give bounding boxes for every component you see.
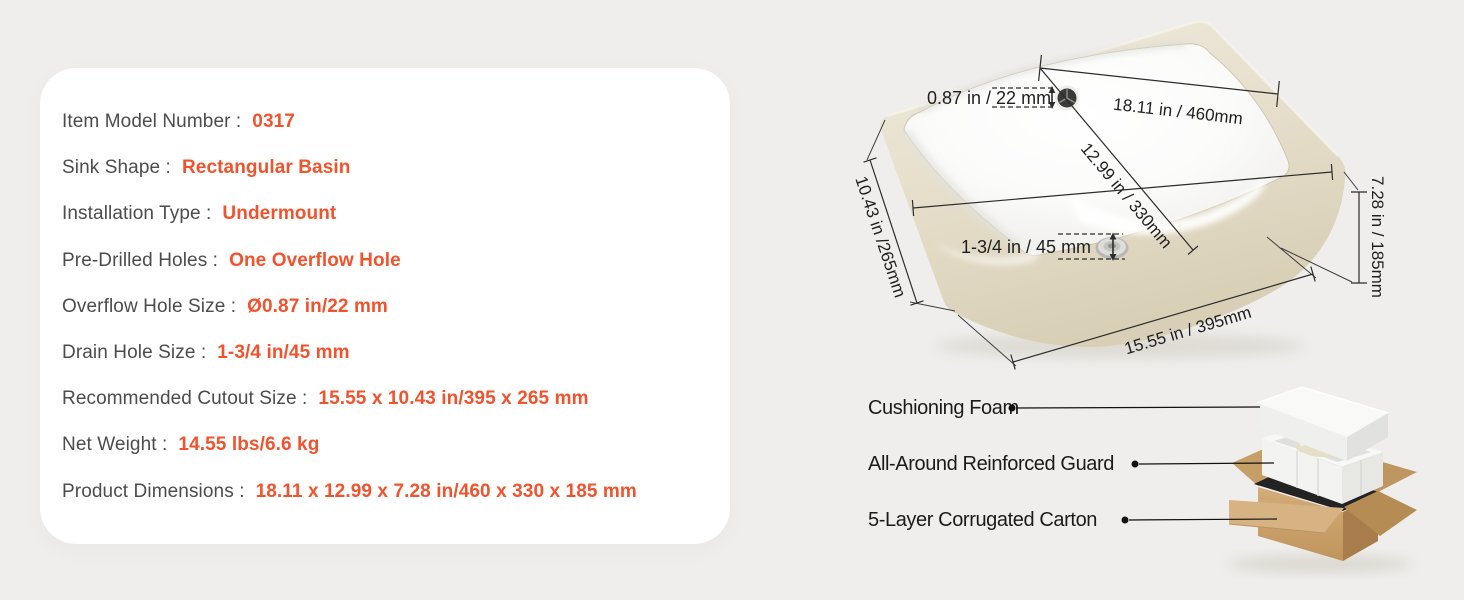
- spec-value: 1-3/4 in/45 mm: [217, 342, 349, 364]
- spec-label: Overflow Hole Size :: [62, 296, 236, 318]
- spec-value: Undermount: [222, 203, 336, 225]
- spec-value: Rectangular Basin: [182, 157, 351, 179]
- dim-line-height: [1351, 192, 1367, 283]
- packaging-label-cushioning-foam: Cushioning Foam: [868, 397, 1019, 419]
- packaging-illustration: [1228, 387, 1417, 573]
- spec-label: Net Weight :: [62, 434, 167, 456]
- spec-row-model-number: Item Model Number : 0317: [62, 99, 730, 145]
- packaging-callouts: Cushioning Foam All-Around Reinforced Gu…: [868, 397, 1277, 531]
- spec-row-drain-hole-size: Drain Hole Size : 1-3/4 in/45 mm: [62, 330, 730, 376]
- spec-label: Product Dimensions :: [62, 481, 245, 503]
- dim-label-drain-size: 1-3/4 in / 45 mm: [961, 237, 1091, 257]
- spec-label: Drain Hole Size :: [62, 342, 206, 364]
- spec-value: 0317: [252, 111, 295, 133]
- spec-row-overflow-hole-size: Overflow Hole Size : Ø0.87 in/22 mm: [62, 284, 730, 330]
- spec-value: 18.11 x 12.99 x 7.28 in/460 x 330 x 185 …: [256, 481, 637, 503]
- callout-dot: [1009, 405, 1016, 412]
- carton-shadow: [1228, 555, 1412, 573]
- spec-row-predrilled-holes: Pre-Drilled Holes : One Overflow Hole: [62, 238, 730, 284]
- spec-value: One Overflow Hole: [229, 250, 401, 272]
- spec-row-sink-shape: Sink Shape : Rectangular Basin: [62, 145, 730, 191]
- dim-label-overflow-size: 0.87 in / 22 mm: [927, 88, 1051, 108]
- spec-label: Sink Shape :: [62, 157, 171, 179]
- spec-row-net-weight: Net Weight : 14.55 lbs/6.6 kg: [62, 422, 730, 468]
- spec-label: Installation Type :: [62, 203, 211, 225]
- packaging-label-reinforced-guard: All-Around Reinforced Guard: [868, 453, 1114, 475]
- spec-row-product-dimensions: Product Dimensions : 18.11 x 12.99 x 7.2…: [62, 469, 730, 515]
- spec-label: Pre-Drilled Holes :: [62, 250, 218, 272]
- spec-label: Recommended Cutout Size :: [62, 388, 307, 410]
- callout-dot: [1132, 461, 1139, 468]
- sink-dimension-diagram: 0.87 in / 22 mm 1-3/4 in / 45 mm 18.11 i…: [840, 0, 1464, 600]
- callout-dot: [1122, 517, 1129, 524]
- spec-value: Ø0.87 in/22 mm: [247, 296, 388, 318]
- dim-label-height: 7.28 in / 185mm: [1368, 176, 1387, 298]
- spec-card: Item Model Number : 0317 Sink Shape : Re…: [40, 68, 730, 544]
- spec-row-installation-type: Installation Type : Undermount: [62, 191, 730, 237]
- callout-line: [1016, 407, 1260, 408]
- spec-value: 15.55 x 10.43 in/395 x 265 mm: [318, 388, 588, 410]
- packaging-label-corrugated-carton: 5-Layer Corrugated Carton: [868, 509, 1097, 531]
- spec-row-cutout-size: Recommended Cutout Size : 15.55 x 10.43 …: [62, 376, 730, 422]
- spec-label: Item Model Number :: [62, 111, 241, 133]
- product-spec-infographic: Item Model Number : 0317 Sink Shape : Re…: [0, 0, 1464, 600]
- spec-value: 14.55 lbs/6.6 kg: [178, 434, 319, 456]
